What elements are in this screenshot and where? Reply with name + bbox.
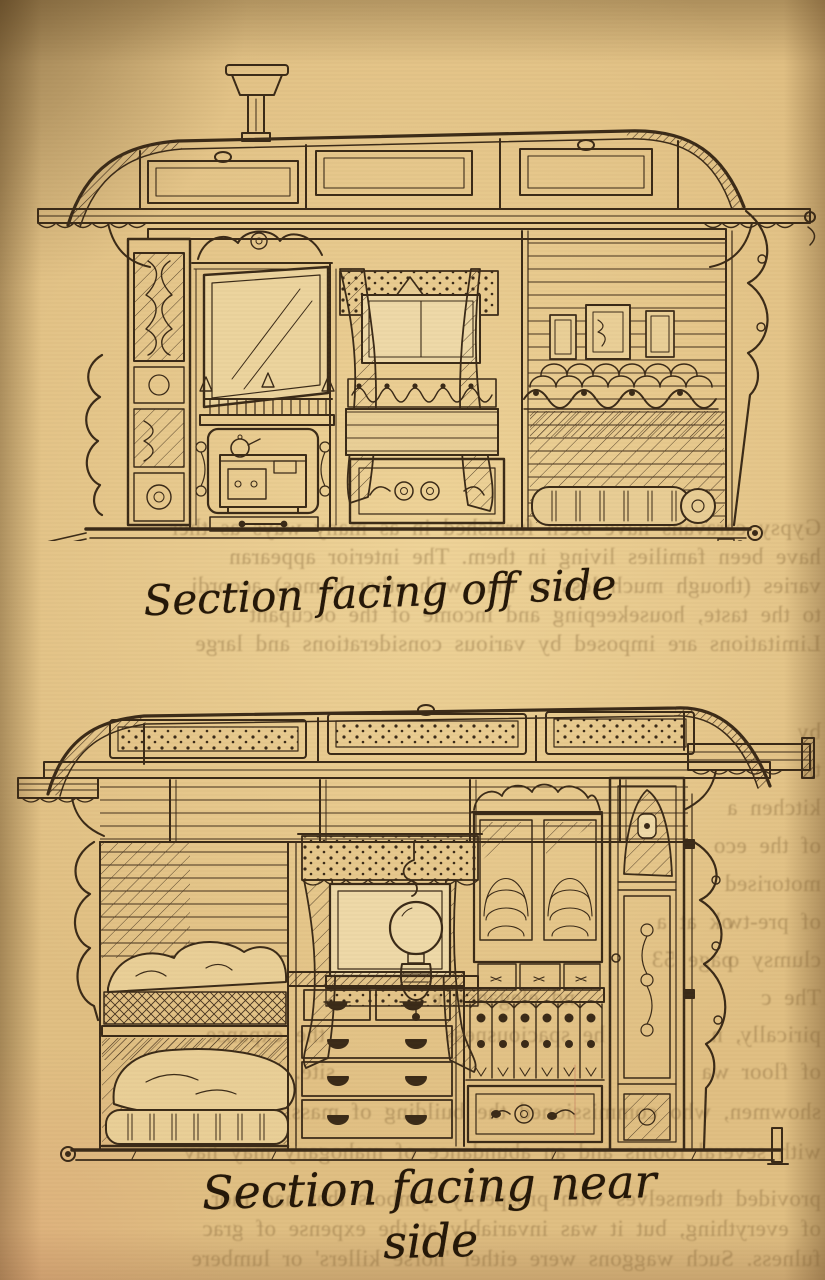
- dotted-valance: [298, 834, 482, 885]
- wardrobe-door: [128, 239, 190, 525]
- overmantel-mirror: [204, 267, 328, 407]
- large-pillow: [114, 1049, 295, 1116]
- underbed-drawer: [350, 459, 504, 523]
- lower-bunk: [102, 1038, 295, 1146]
- book-page-photo: Gypsy caravans have been furnished in as…: [0, 0, 825, 1280]
- chimney-stack: [226, 65, 288, 141]
- carved-drawer: [468, 1086, 602, 1142]
- door-handle: [612, 954, 620, 962]
- lower-bunk: [530, 411, 724, 525]
- bed-front-board: [346, 409, 498, 455]
- tufted-rack: [464, 988, 604, 1080]
- upper-bunk-quilt: [102, 992, 288, 1036]
- cooking-stove: [210, 435, 318, 531]
- carved-crest: [192, 231, 332, 269]
- caption-near-side: Section facing near side: [149, 1153, 712, 1276]
- mollycroft-roof: [68, 131, 744, 227]
- skylight-windows: [148, 140, 652, 203]
- illustration-caravan-off-side: [28, 55, 820, 541]
- bleed-through-line: Limitations are imposed by various consi…: [195, 632, 821, 655]
- floor-line: [38, 526, 762, 541]
- striped-bolster: [106, 1110, 288, 1144]
- illustration-caravan-near-side: [16, 690, 818, 1172]
